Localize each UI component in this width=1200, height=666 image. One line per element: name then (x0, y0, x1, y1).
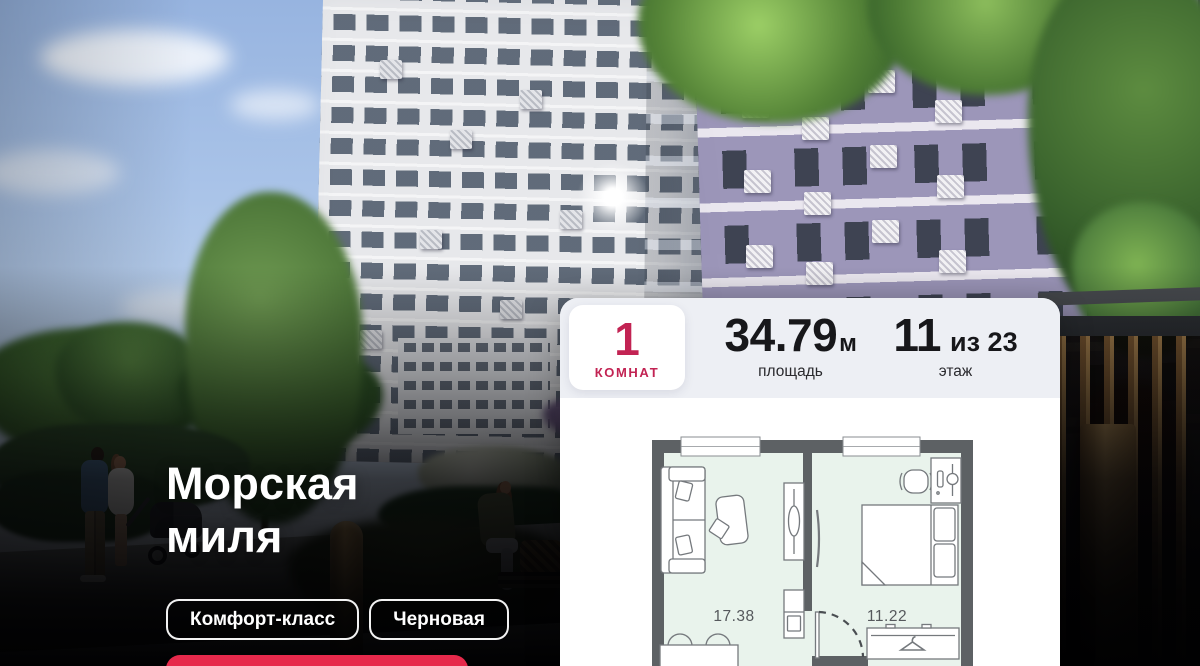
metro-distance-button[interactable]: Квартира в 350 м. от метро (166, 655, 468, 666)
living-room-area-label: 17.38 (713, 608, 754, 625)
rooms-badge: 1 КОМНАТ (569, 305, 685, 390)
project-title: Морская миля (166, 458, 476, 563)
floor-value: 11 (893, 312, 941, 358)
floor-of-total: из 23 (950, 329, 1018, 356)
bedroom-area-label: 11.22 (867, 608, 907, 625)
page: Морская миля Комфорт-класс Черновая Квар… (0, 0, 1200, 666)
hero-text-block: Морская миля Комфорт-класс Черновая Квар… (166, 458, 509, 666)
apartment-card[interactable]: 1 КОМНАТ 34.79 м площадь 11 из 23 этаж (560, 298, 1060, 666)
area-stat: 34.79 м площадь (688, 312, 893, 381)
floor-stat: 11 из 23 этаж (868, 312, 1043, 381)
tag-row: Комфорт-класс Черновая (166, 599, 509, 640)
floor-plan-svg: 17.38 11.22 (560, 398, 1060, 666)
floor-plan: 17.38 11.22 (560, 398, 1060, 666)
tag-finishing[interactable]: Черновая (369, 599, 509, 640)
area-unit: м (839, 332, 856, 356)
stats-bar: 1 КОМНАТ 34.79 м площадь 11 из 23 этаж (560, 298, 1060, 398)
floor-label: этаж (868, 363, 1043, 381)
area-label: площадь (688, 363, 893, 381)
rooms-value: 1 (614, 316, 640, 362)
area-value: 34.79 (725, 312, 838, 358)
rooms-label: КОМНАТ (595, 365, 660, 380)
tag-comfort-class[interactable]: Комфорт-класс (166, 599, 359, 640)
